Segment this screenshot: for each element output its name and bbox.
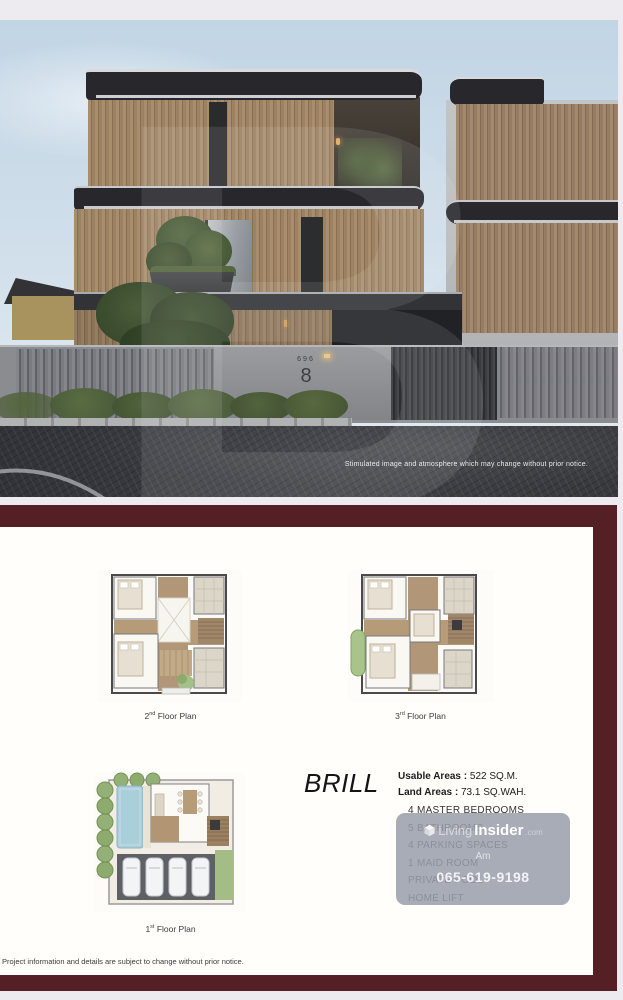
hero-photo: 696 8 B Stimulated image and atmosphere … xyxy=(0,20,618,497)
floor-plan-2-label: 2nd Floor Plan xyxy=(88,711,253,721)
brochure-page: 696 8 B Stimulated image and atmosphere … xyxy=(0,0,623,1000)
watermark-living-text: Living xyxy=(438,823,472,838)
livinginsider-logo: LivingInsider.com xyxy=(396,822,570,839)
photo-watermark-letter: B xyxy=(104,38,508,497)
cube-icon xyxy=(423,824,436,837)
agent-name: Am xyxy=(396,851,570,862)
floor-plan-1-image xyxy=(95,772,245,912)
agent-phone: 065-619-9198 xyxy=(396,869,570,885)
floor-plan-2-image xyxy=(98,570,243,702)
maroon-panel: 2nd Floor Plan xyxy=(0,505,617,991)
floor-plan-3-label: 3rd Floor Plan xyxy=(338,711,503,721)
floor-plan-1-label: 1st Floor Plan xyxy=(88,924,253,934)
neighbor-house-wall xyxy=(12,296,74,340)
land-areas-value: 73.1 SQ.WAH. xyxy=(461,787,526,798)
floor-plan-3-image xyxy=(348,570,493,702)
watermark-tld-text: .com xyxy=(525,828,542,837)
land-areas-label: Land Areas xyxy=(398,787,452,798)
spec-usable-areas: Usable Areas : 522 SQ.M. xyxy=(398,771,588,782)
livinginsider-watermark: LivingInsider.com Am 065-619-9198 xyxy=(396,813,570,905)
fence-slat-section-right xyxy=(497,347,618,418)
usable-areas-label: Usable Areas xyxy=(398,771,461,782)
content-card: 2nd Floor Plan xyxy=(0,527,593,975)
spec-land-areas: Land Areas : 73.1 SQ.WAH. xyxy=(398,787,588,798)
brand-logo: BRILL xyxy=(304,768,379,799)
photo-caption: Stimulated image and atmosphere which ma… xyxy=(300,461,588,468)
project-disclaimer: Project information and details are subj… xyxy=(2,957,244,966)
watermark-insider-text: Insider xyxy=(474,822,523,839)
usable-areas-value: 522 SQ.M. xyxy=(470,771,518,782)
